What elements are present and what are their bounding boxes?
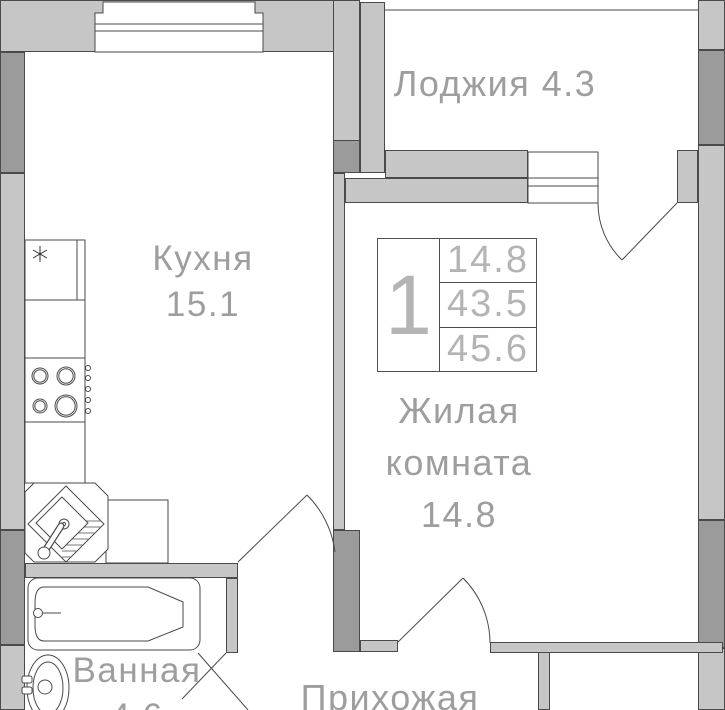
wall [677, 150, 698, 203]
bathroom-name: Ванная [73, 648, 202, 694]
room-label-living: Жилая комната 14.8 [386, 385, 533, 542]
kitchen-area: 15.1 [152, 282, 253, 328]
wall [360, 640, 398, 652]
room-label-loggia: Лоджия 4.3 [394, 60, 597, 108]
loggia-name: Лоджия [394, 63, 531, 104]
wall [333, 140, 360, 173]
wall [360, 2, 385, 173]
kitchen-door [238, 495, 335, 562]
loggia-window [528, 152, 598, 203]
wall [0, 530, 25, 645]
living-name-line2: комната [386, 437, 533, 489]
wall [698, 145, 725, 520]
kitchen-name: Кухня [152, 236, 253, 282]
wall [385, 150, 528, 178]
wall [698, 50, 725, 145]
wall [25, 563, 238, 578]
stamp-area-row2: 43.5 [440, 282, 536, 326]
hallway-name: Прихожая [301, 674, 480, 710]
wall [226, 578, 238, 653]
wall [333, 530, 360, 652]
wash-basin [22, 655, 69, 710]
living-room-door [398, 578, 490, 643]
living-area: 14.8 [386, 489, 533, 541]
stamp-rooms-count: 1 [378, 239, 440, 371]
wall [698, 520, 725, 648]
living-name-line1: Жилая [386, 385, 533, 437]
wall [0, 0, 345, 52]
wall [698, 0, 725, 50]
wall [0, 645, 25, 710]
wall [538, 652, 550, 710]
room-label-bathroom: Ванная 4.6 [73, 648, 202, 710]
stamp-area-row1: 14.8 [440, 239, 536, 282]
room-label-hallway: Прихожая [301, 674, 480, 710]
wall [490, 642, 723, 653]
bathroom-area: 4.6 [73, 694, 202, 710]
apartment-stamp: 1 14.8 43.5 45.6 [377, 238, 537, 372]
kitchen-sink [25, 483, 108, 562]
balcony-door [598, 203, 677, 260]
fridge [25, 240, 85, 300]
room-label-kitchen: Кухня 15.1 [152, 236, 253, 328]
wall [345, 178, 528, 203]
stove [25, 358, 91, 422]
floor-plan: Кухня 15.1 Лоджия 4.3 Жилая комната 14.8… [0, 0, 725, 710]
loggia-area: 4.3 [542, 63, 597, 104]
wall [333, 173, 345, 530]
wall [0, 52, 25, 173]
stamp-area-row3: 45.6 [440, 327, 536, 371]
wall [698, 648, 725, 710]
wall [0, 173, 25, 530]
kitchen-counter [25, 300, 168, 563]
bathtub [28, 578, 200, 650]
